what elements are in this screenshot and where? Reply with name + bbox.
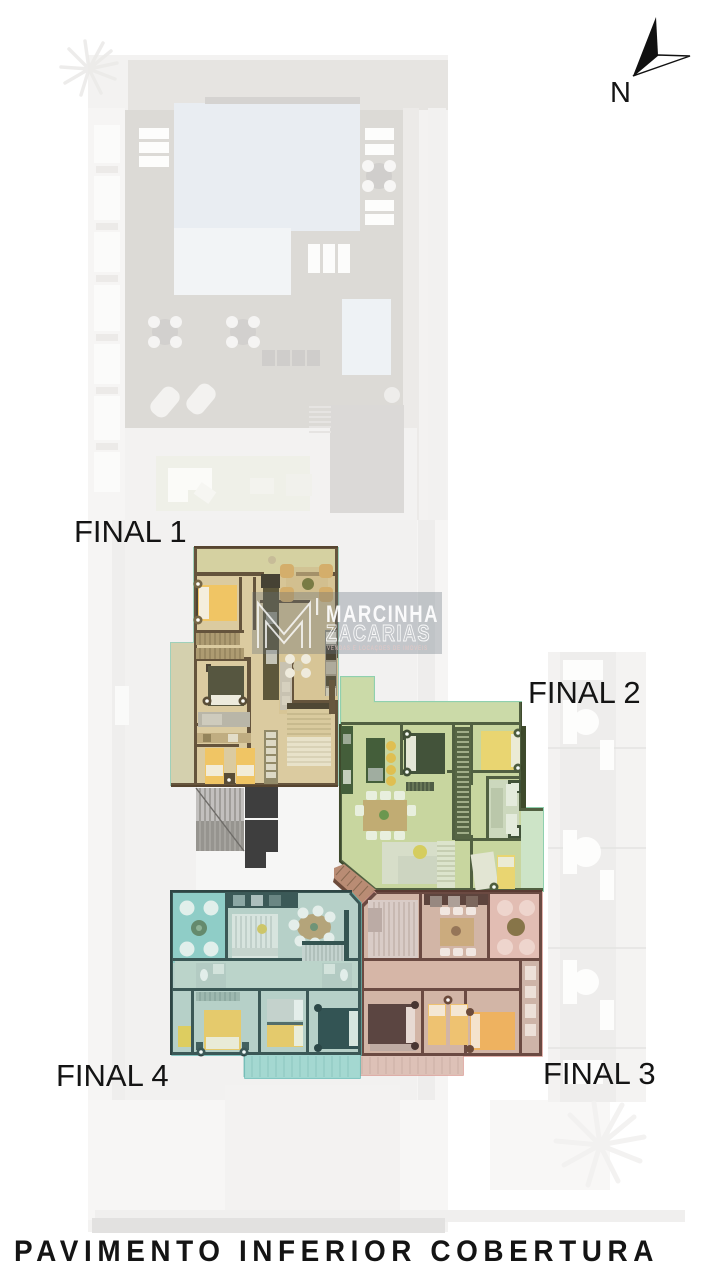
svg-text:ZACARIAS: ZACARIAS	[326, 620, 431, 646]
svg-text:PAVIMENTO INFERIOR COBERTURA: PAVIMENTO INFERIOR COBERTURA	[14, 1235, 659, 1268]
svg-text:N: N	[610, 77, 631, 109]
svg-text:FINAL 4: FINAL 4	[56, 1058, 169, 1093]
svg-text:VENDAS E LOCAÇÕES DE IMÓVEIS: VENDAS E LOCAÇÕES DE IMÓVEIS	[327, 645, 428, 652]
svg-text:FINAL 1: FINAL 1	[74, 514, 187, 549]
svg-text:FINAL 3: FINAL 3	[543, 1056, 656, 1091]
svg-text:FINAL 2: FINAL 2	[528, 675, 641, 710]
